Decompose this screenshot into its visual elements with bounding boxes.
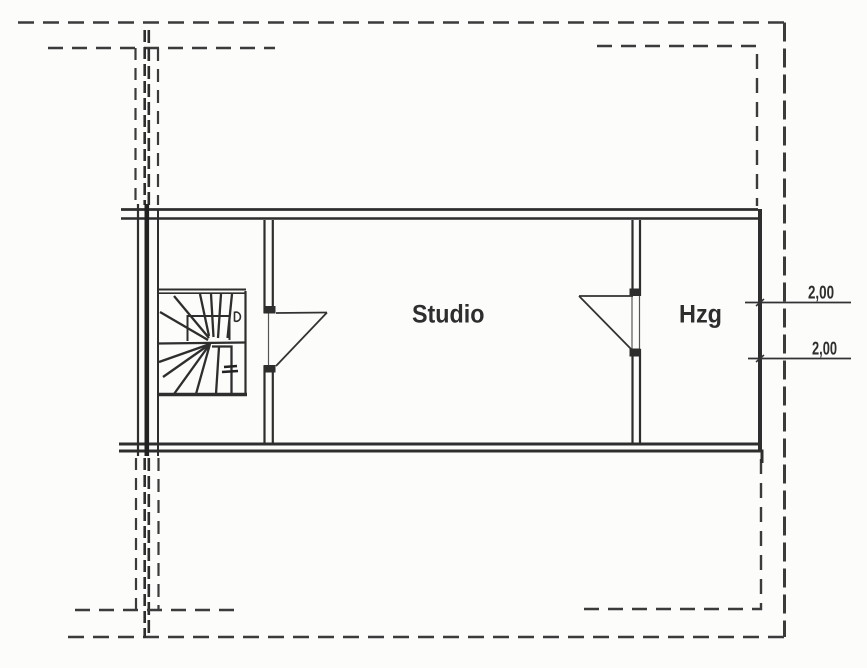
svg-text:Hzg: Hzg <box>679 301 722 329</box>
svg-text:2,00: 2,00 <box>812 338 837 359</box>
svg-text:2,00: 2,00 <box>808 282 834 303</box>
svg-text:Studio: Studio <box>412 301 485 329</box>
